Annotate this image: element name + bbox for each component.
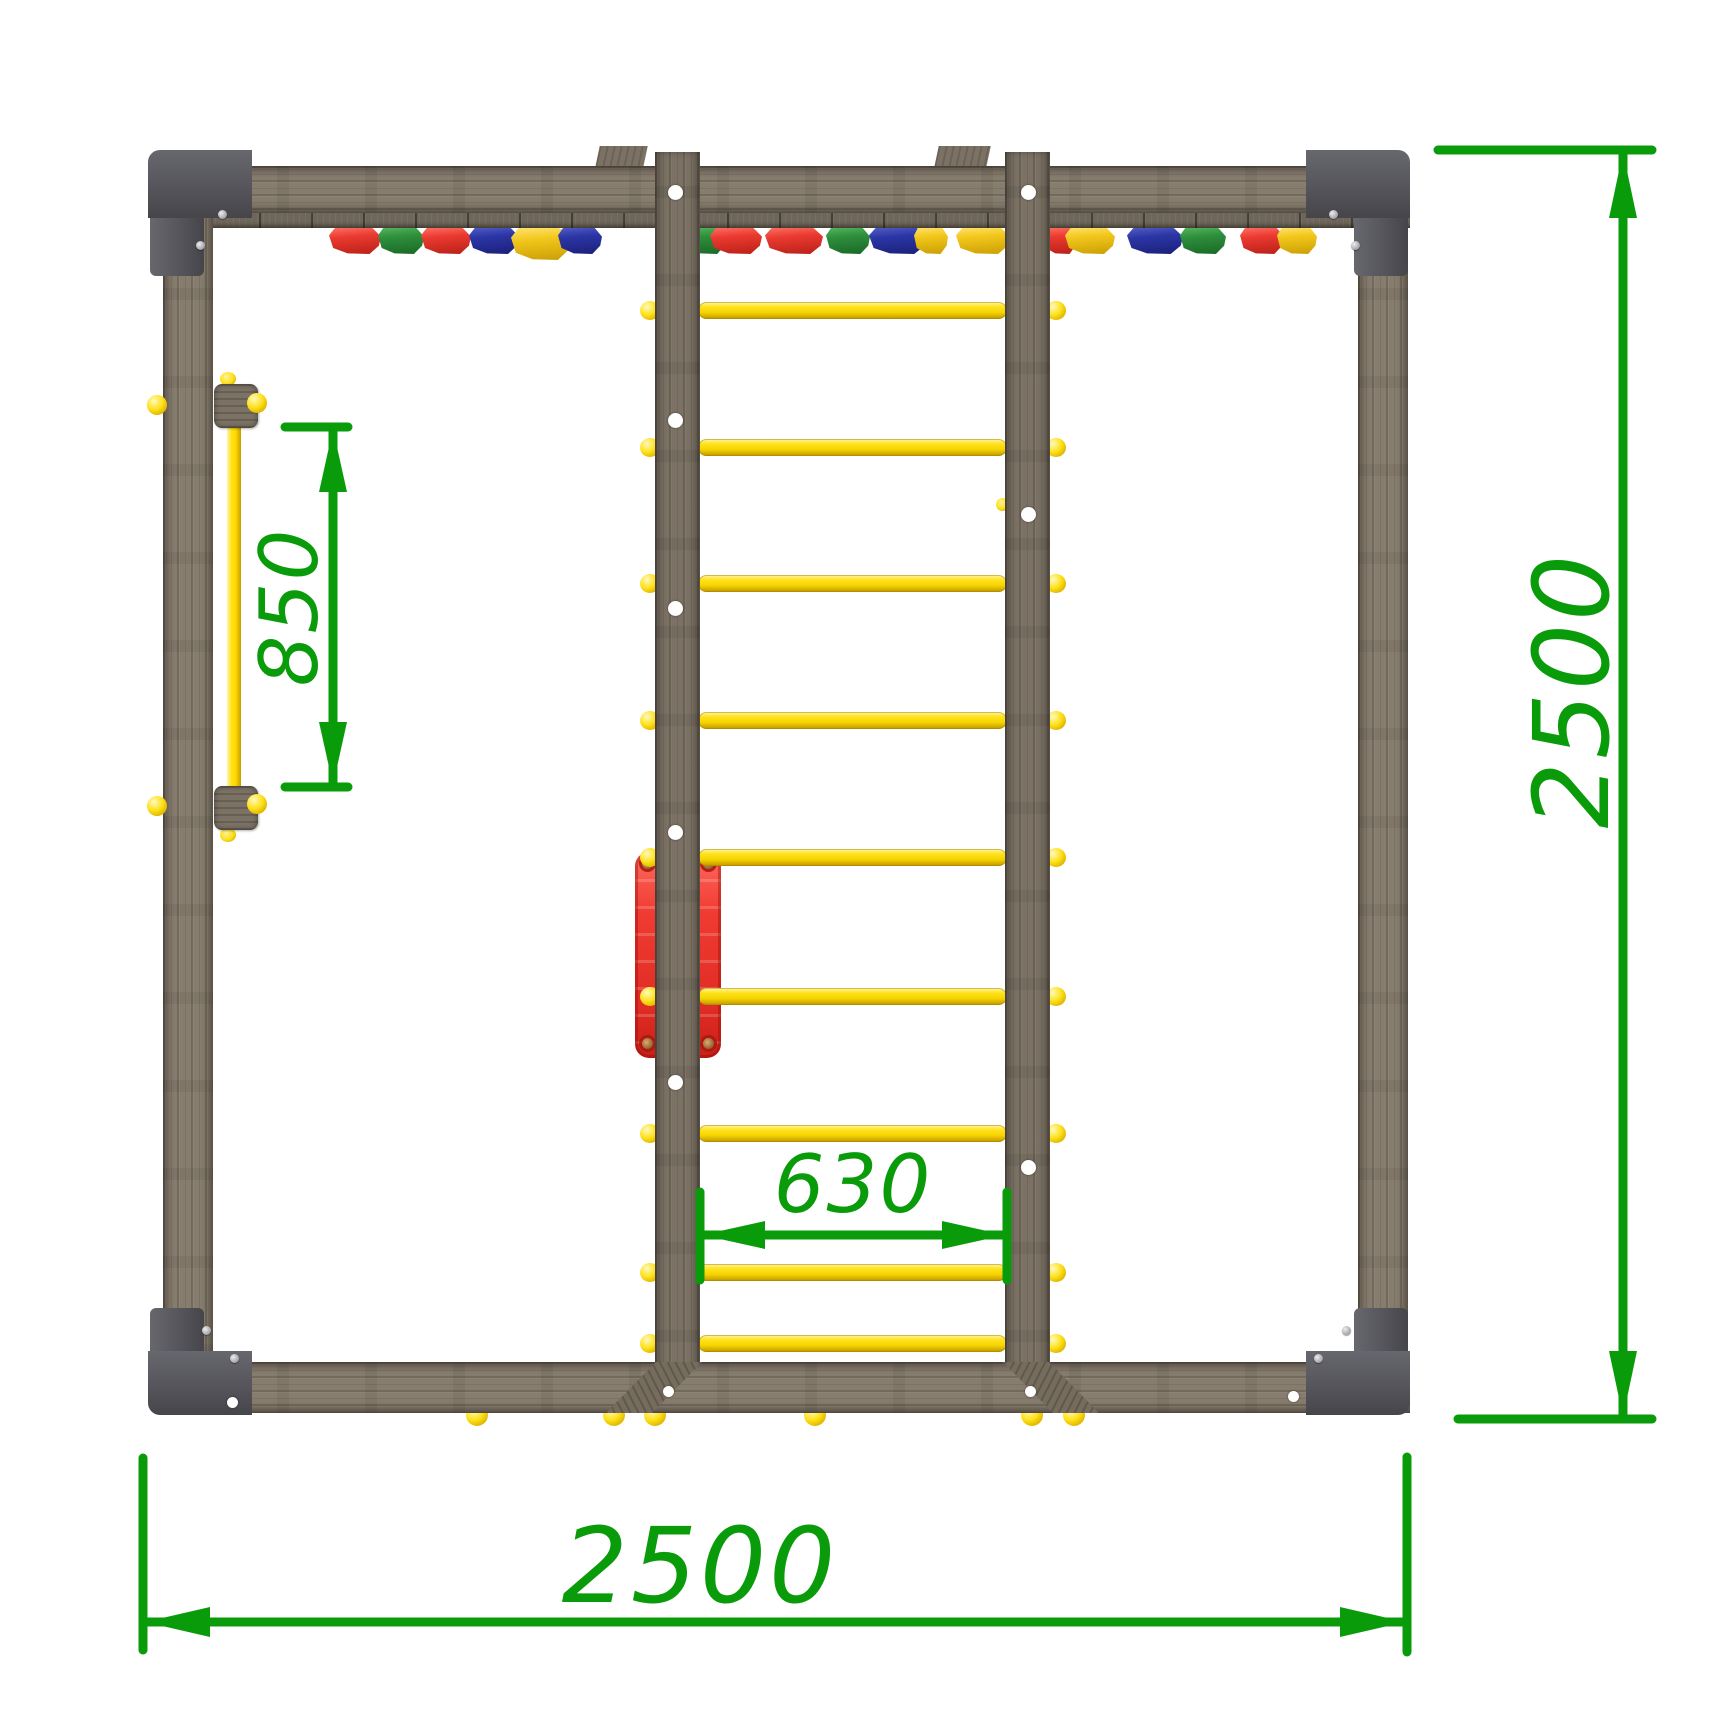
corner-bracket-bottom-right-arm xyxy=(1354,1308,1408,1356)
ladder-rung xyxy=(698,712,1007,729)
red-climbing-hold xyxy=(421,224,471,254)
bracket-screw xyxy=(1329,210,1338,219)
dimension-label-width-2500: 2500 xyxy=(562,1505,839,1627)
dimension-bar-850: 850 xyxy=(243,427,348,787)
ladder-rung xyxy=(698,1335,1007,1352)
bolt-hole xyxy=(668,1075,683,1090)
dimension-width-2500: 2500 xyxy=(143,1457,1407,1652)
bolt-hole xyxy=(1288,1391,1299,1402)
bracket-screw xyxy=(1351,241,1360,250)
bar-bolt-cap xyxy=(147,796,167,816)
bolt-hole xyxy=(1021,507,1036,522)
yellow-climbing-hold xyxy=(1277,224,1317,254)
bar-end-nub xyxy=(220,828,236,842)
dimension-height-2500: 2500 xyxy=(1438,150,1652,1419)
bracket-screw xyxy=(218,210,227,219)
bar-bolt-cap xyxy=(247,393,267,413)
bolt-hole xyxy=(1021,1160,1036,1175)
green-climbing-hold xyxy=(378,224,424,254)
bolt-hole xyxy=(668,185,683,200)
bracket-screw xyxy=(1314,1354,1323,1363)
panel-screw xyxy=(642,1038,653,1049)
bolt-hole xyxy=(663,1386,674,1397)
bolt-hole xyxy=(668,825,683,840)
ladder-rung xyxy=(698,1125,1007,1142)
frame-bottom-beam xyxy=(155,1362,1410,1413)
frame-left-post xyxy=(163,166,213,1354)
ladder-left-rail xyxy=(655,152,700,1413)
dimension-label-850: 850 xyxy=(243,528,336,687)
ladder-rung xyxy=(698,849,1007,866)
bolt-hole xyxy=(668,601,683,616)
ladder-rung xyxy=(698,988,1007,1005)
dimension-label-630: 630 xyxy=(774,1138,933,1231)
bracket-screw xyxy=(202,1326,211,1335)
corner-bracket-bottom-left-arm xyxy=(150,1308,204,1356)
bolt-hole xyxy=(1025,1386,1036,1397)
bolt-hole xyxy=(227,1397,238,1408)
ladder-rung xyxy=(698,575,1007,592)
corner-bracket-top-right xyxy=(1306,150,1410,218)
ladder-right-rail xyxy=(1005,152,1050,1413)
gym-bar xyxy=(227,402,241,816)
blue-climbing-hold xyxy=(1127,224,1183,254)
bar-bolt-cap xyxy=(147,395,167,415)
top-beam-edge-boards xyxy=(155,213,1410,228)
dimension-label-height-2500: 2500 xyxy=(1511,552,1633,829)
bracket-screw xyxy=(230,1354,239,1363)
bar-bolt-cap xyxy=(247,794,267,814)
red-climbing-hold xyxy=(329,224,381,254)
bracket-screw xyxy=(1342,1326,1351,1335)
frame-top-beam xyxy=(155,166,1410,213)
red-climbing-hold xyxy=(765,224,823,254)
dimension-rung-630: 630 xyxy=(700,1138,1007,1280)
ladder-rung xyxy=(698,302,1007,319)
bolt-hole xyxy=(1021,185,1036,200)
ladder-rung xyxy=(698,1264,1007,1281)
yellow-climbing-hold xyxy=(956,224,1010,254)
corner-bracket-top-right-arm xyxy=(1354,218,1408,276)
red-climbing-hold xyxy=(1240,224,1284,254)
green-climbing-hold xyxy=(826,224,870,254)
frame-right-post xyxy=(1358,166,1408,1354)
ladder-rung xyxy=(698,439,1007,456)
green-climbing-hold xyxy=(1180,224,1226,254)
playground-top-view-drawing: 850 630 2500 2500 xyxy=(0,0,1730,1719)
panel-screw xyxy=(703,1038,714,1049)
bracket-screw xyxy=(196,241,205,250)
bolt-hole xyxy=(668,413,683,428)
corner-bracket-top-left xyxy=(148,150,252,218)
